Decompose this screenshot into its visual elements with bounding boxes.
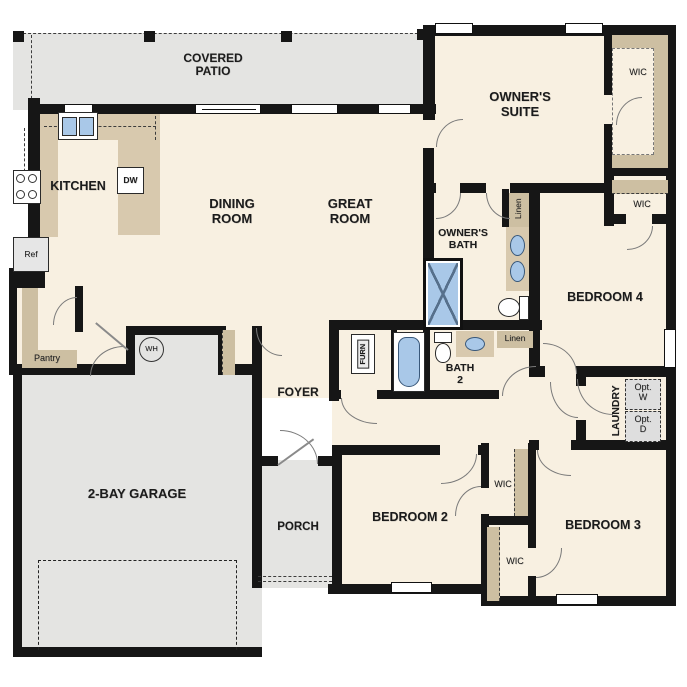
wall	[528, 576, 536, 606]
wall	[578, 366, 676, 377]
bedroom4-wic-shelf	[612, 180, 668, 194]
dishwasher-label: DW	[122, 176, 138, 186]
window	[435, 23, 473, 34]
shower-pan	[428, 263, 458, 325]
furnace-closet-unit: FURN	[351, 334, 375, 374]
refrigerator-label: Ref	[24, 250, 37, 260]
wall	[28, 98, 40, 172]
patio-edge-dashed	[13, 33, 428, 34]
wall	[510, 183, 614, 193]
room-label-great: GREAT ROOM	[310, 197, 390, 226]
sliding-door-rail	[202, 109, 256, 110]
closet-label-linen-hall: Linen	[499, 334, 531, 344]
closet-label-linen-owners: Linen	[514, 189, 524, 229]
patio-post	[281, 31, 292, 42]
window	[565, 23, 603, 34]
optional-dryer: Opt.D	[625, 411, 661, 442]
wall	[423, 25, 435, 120]
burner	[28, 174, 37, 183]
kitchen-sink	[58, 112, 98, 140]
wall	[329, 390, 341, 399]
bath2-vanity	[456, 331, 494, 357]
room-label-dining: DINING ROOM	[192, 197, 272, 226]
room-label-owners-bath: OWNER'S BATH	[423, 228, 503, 252]
room-label-garage: 2-BAY GARAGE	[87, 487, 187, 502]
shower	[423, 258, 463, 330]
window	[556, 594, 598, 605]
wall	[13, 271, 45, 288]
closet-label-wic-bedroom4: WIC	[626, 199, 658, 209]
vanity-sink	[510, 261, 525, 282]
burner	[28, 190, 37, 199]
sliding-door	[195, 104, 261, 114]
room-label-bedroom3: BEDROOM 3	[545, 518, 661, 532]
closet-label-wic-owners: WIC	[622, 67, 654, 77]
optional-washer-label: Opt.W	[626, 382, 660, 402]
water-heater: WH	[139, 337, 164, 362]
closet-label-wic-bedroom2: WIC	[487, 479, 519, 489]
refrigerator: Ref	[13, 237, 49, 272]
furnace-label: FURN	[357, 340, 369, 369]
bath2-toilet	[433, 331, 453, 364]
room-label-porch: PORCH	[272, 521, 324, 534]
wall	[252, 456, 278, 466]
wall	[604, 214, 626, 224]
wall	[332, 445, 342, 594]
window	[664, 329, 676, 368]
window	[378, 104, 411, 114]
room-label-kitchen: KITCHEN	[43, 179, 113, 193]
dishwasher: DW	[117, 167, 144, 194]
wall	[481, 516, 536, 525]
patio-post	[13, 31, 24, 42]
patio-post	[144, 31, 155, 42]
optional-dryer-label: Opt.D	[626, 414, 660, 434]
wall	[329, 320, 339, 401]
room-label-bath2: BATH 2	[443, 363, 477, 387]
room-label-laundry: LAUNDRY	[611, 381, 623, 441]
garage-door-dashed	[38, 560, 237, 650]
floorplan-page: { "rooms": { "covered_patio": "COVERED P…	[0, 0, 687, 687]
wall	[9, 268, 17, 368]
vanity-sink	[465, 337, 485, 351]
burner	[16, 174, 25, 183]
toilet-tank	[434, 332, 452, 343]
toilet-tank	[519, 296, 529, 320]
porch-edge-dashed	[258, 581, 332, 582]
room-label-bedroom2: BEDROOM 2	[352, 510, 468, 524]
sink-basin	[79, 117, 94, 136]
room-label-bedroom4: BEDROOM 4	[543, 290, 667, 304]
closet-label-pantry: Pantry	[25, 353, 69, 363]
wall	[126, 326, 222, 335]
bathtub	[393, 332, 425, 392]
room-label-foyer: FOYER	[268, 386, 328, 399]
vanity-sink	[510, 235, 525, 256]
owners-vanity	[506, 227, 529, 291]
window	[391, 582, 432, 593]
wall	[13, 366, 22, 656]
sink-basin	[62, 117, 77, 136]
owners-toilet	[497, 295, 530, 322]
upper-cabinet-dashed	[155, 116, 156, 140]
wall	[318, 456, 340, 466]
closet-label-wic-bedroom3: WIC	[499, 556, 531, 566]
burner	[16, 190, 25, 199]
window	[291, 104, 338, 114]
tub-basin	[398, 337, 420, 387]
wall	[528, 443, 536, 548]
wall	[652, 214, 676, 224]
foyer-closet-rod	[222, 330, 235, 375]
wall	[332, 445, 440, 455]
wall	[460, 183, 486, 193]
water-heater-label: WH	[145, 345, 158, 353]
cooktop	[13, 170, 41, 204]
optional-washer: Opt.W	[625, 379, 661, 410]
toilet-bowl	[498, 298, 520, 317]
porch-edge-dashed	[258, 576, 332, 577]
toilet-bowl	[435, 343, 451, 363]
room-label-covered-patio: COVERED PATIO	[168, 52, 258, 79]
room-label-owners-suite: OWNER'S SUITE	[480, 90, 560, 119]
